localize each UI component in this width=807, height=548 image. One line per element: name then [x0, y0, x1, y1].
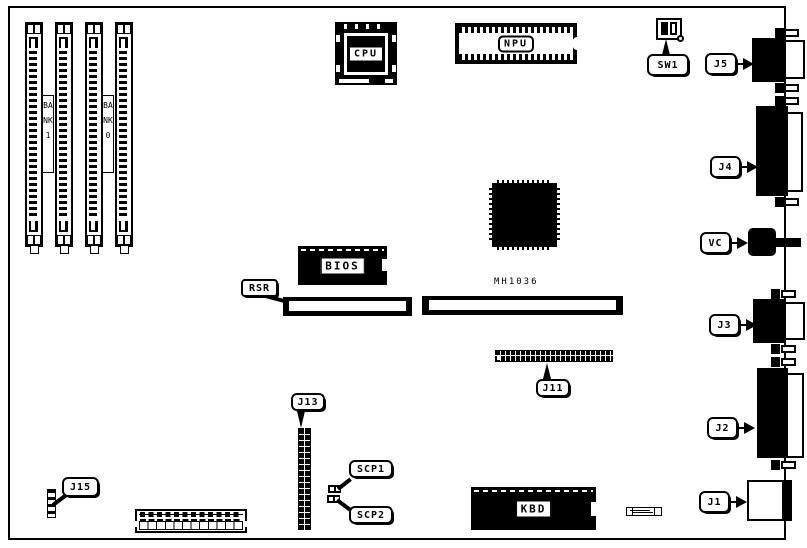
j2-tab [771, 460, 780, 470]
vc-arrow-head [737, 237, 748, 249]
j4-tab [775, 197, 784, 207]
j13-callout: J13 [291, 393, 325, 411]
slot-latch-icon [89, 221, 98, 232]
cpu-pin-mark [385, 79, 393, 83]
j11-row-divider [495, 355, 613, 356]
sw1-switch [656, 18, 682, 40]
slot-latch-icon [119, 221, 128, 232]
j11-header [495, 350, 613, 362]
cpu-pin-mark [336, 65, 340, 72]
j3-body [753, 299, 784, 343]
slot-latch-icon [29, 221, 38, 232]
cpu-pin-mark [392, 65, 396, 72]
j4-arrow-head [747, 161, 758, 173]
j1-body [747, 480, 784, 521]
j5-tab-shell [784, 84, 799, 92]
slot-latch-icon [119, 37, 128, 48]
ic-part-number: MH1036 [494, 277, 539, 287]
power-connector [135, 509, 247, 533]
j3-tab [771, 344, 780, 354]
j5-tab-shell [784, 29, 799, 37]
slot-tab [27, 24, 34, 34]
j2-tab [771, 357, 780, 367]
slot-tab [124, 24, 131, 34]
cpu-pin-mark [336, 35, 340, 42]
mh1036-slot [422, 296, 623, 315]
qfp-chip [492, 183, 557, 247]
slot-latch-icon [89, 37, 98, 48]
simm-slot-1 [25, 22, 43, 247]
rsr-slot [283, 297, 412, 316]
kbd-label: KBD [516, 500, 552, 517]
sw1-callout: SW1 [647, 54, 689, 76]
j11-callout: J11 [536, 379, 570, 397]
npu-label: NPU [498, 35, 534, 52]
j13-header [298, 428, 311, 530]
slot-tab [94, 24, 101, 34]
slot-tab [87, 235, 94, 245]
npu-notch-icon [572, 37, 582, 50]
vc-body [748, 228, 776, 256]
j13-col-divider [304, 428, 305, 530]
kbd-chip: KBD [471, 487, 596, 530]
slot-tab [94, 235, 101, 245]
bios-notch-icon [382, 259, 387, 271]
j4-tab [775, 96, 784, 106]
bios-chip: BIOS [298, 246, 387, 285]
cpu-pin-mark [392, 35, 396, 42]
j4-body [756, 106, 788, 196]
j2-body [757, 368, 788, 458]
npu-pins-bottom [459, 54, 573, 60]
j11-pin1-marker [497, 356, 501, 360]
j11-pointer [543, 363, 551, 379]
slot-tab [64, 235, 71, 245]
jumper-divider [654, 508, 655, 515]
slot-contacts [89, 51, 97, 219]
j5-callout: J5 [705, 53, 737, 75]
j3-arrow-head [746, 319, 757, 331]
slot-foot [90, 245, 99, 254]
power-notch [133, 521, 138, 527]
slot-foot [60, 245, 69, 254]
slot-tab [27, 235, 34, 245]
slot-tab [57, 235, 64, 245]
slot-tab [117, 235, 124, 245]
power-socket-row [139, 521, 243, 530]
simm-slot-4 [115, 22, 133, 247]
jumper-line [630, 510, 650, 511]
scp2-callout: SCP2 [349, 506, 393, 524]
j3-tab-shell [781, 345, 796, 353]
j5-tab [775, 83, 784, 93]
slot-latch-icon [29, 37, 38, 48]
vc-callout: VC [700, 232, 731, 254]
simm-slot-2 [55, 22, 73, 247]
motherboard-diagram: BANK1 BANK0 CPU NPU SW1 [0, 0, 807, 548]
slot-contacts [29, 51, 37, 219]
cpu-inner-ring: CPU [344, 33, 388, 75]
qfp-pins [497, 247, 552, 250]
sw1-dot-icon [677, 35, 684, 42]
rsr-callout: RSR [241, 279, 278, 297]
j1-arrow-head [736, 496, 747, 508]
cpu-socket: CPU [335, 22, 397, 85]
j4-callout: J4 [710, 156, 741, 178]
slot-tab [34, 24, 41, 34]
bank0-label: BANK0 [102, 95, 114, 173]
j5-tab [775, 28, 784, 38]
scp1-callout: SCP1 [349, 460, 393, 478]
scp-pin [330, 487, 334, 491]
kbd-notch-icon [591, 502, 596, 516]
bios-label: BIOS [320, 257, 365, 274]
npu-chip: NPU [455, 23, 577, 64]
cpu-pins-top [344, 24, 388, 29]
jumper-divider [632, 508, 633, 515]
j1-edge [782, 480, 792, 521]
j15-callout: J15 [62, 477, 99, 497]
slot-latch-icon [59, 221, 68, 232]
j4-tab-shell [784, 97, 799, 105]
j2-tab-shell [781, 461, 796, 469]
j3-callout: J3 [709, 314, 740, 336]
j3-tab [771, 289, 780, 299]
bios-pin-stripe [301, 249, 384, 251]
slot-tab [87, 24, 94, 34]
jumper-block [626, 507, 662, 516]
slot-opening [289, 301, 406, 311]
j13-pointer [297, 411, 305, 428]
vc-pin [776, 238, 801, 247]
slot-tab [34, 235, 41, 245]
jumper-line [633, 512, 653, 513]
slot-contacts [119, 51, 127, 219]
slot-foot [120, 245, 129, 254]
slot-tab [124, 235, 131, 245]
j2-callout: J2 [707, 417, 738, 439]
bank1-label: BANK1 [42, 95, 54, 173]
j11-pins [496, 351, 612, 361]
power-notch [244, 521, 249, 527]
j2-shell [786, 373, 804, 458]
qfp-pins [489, 188, 492, 242]
j5-shell [784, 40, 805, 79]
cpu-label: CPU [349, 47, 383, 62]
j1-callout: J1 [699, 491, 730, 513]
cpu-pin-mark [339, 79, 369, 83]
sw1-switch-on [661, 22, 668, 35]
simm-slot-3 [85, 22, 103, 247]
slot-tab [64, 24, 71, 34]
power-pin-row [140, 512, 242, 517]
j3-shell [784, 302, 805, 340]
slot-contacts [59, 51, 67, 219]
slot-foot [30, 245, 39, 254]
kbd-pin-stripe [474, 490, 593, 492]
qfp-pins [497, 180, 552, 183]
qfp-pins [557, 188, 560, 242]
j2-arrow-head [744, 422, 755, 434]
j3-tab-shell [781, 290, 796, 298]
scp-pin [329, 497, 333, 501]
sw1-pointer [662, 39, 670, 55]
j5-body [752, 38, 784, 82]
slot-latch-icon [59, 37, 68, 48]
slot-opening [429, 300, 616, 310]
sw1-switch-off [670, 22, 677, 35]
slot-tab [117, 24, 124, 34]
j5-arrow-head [743, 58, 754, 70]
j2-tab-shell [781, 358, 796, 366]
j4-tab-shell [784, 198, 799, 206]
slot-tab [57, 24, 64, 34]
